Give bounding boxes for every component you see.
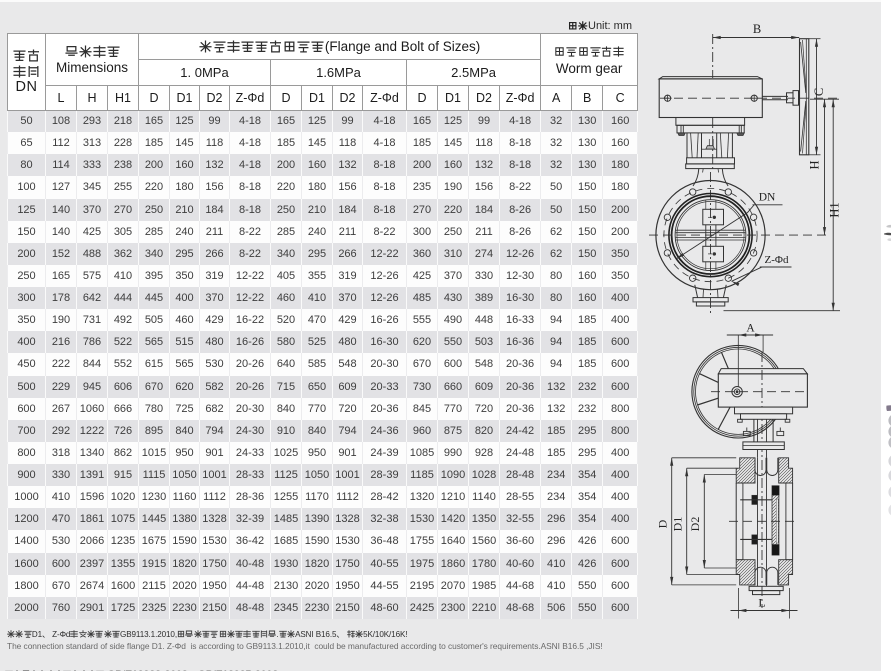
svg-text:A: A: [746, 323, 755, 335]
svg-text:Z-Φd: Z-Φd: [765, 254, 789, 266]
svg-text:H1: H1: [828, 202, 842, 217]
svg-text:L: L: [758, 596, 765, 610]
svg-text:D: D: [656, 519, 670, 528]
svg-text:D2: D2: [688, 517, 702, 532]
svg-text:C: C: [812, 88, 826, 96]
svg-text:H: H: [808, 160, 822, 169]
svg-text:DN: DN: [759, 192, 776, 204]
svg-text:B: B: [753, 22, 761, 36]
svg-text:D1: D1: [671, 517, 685, 532]
